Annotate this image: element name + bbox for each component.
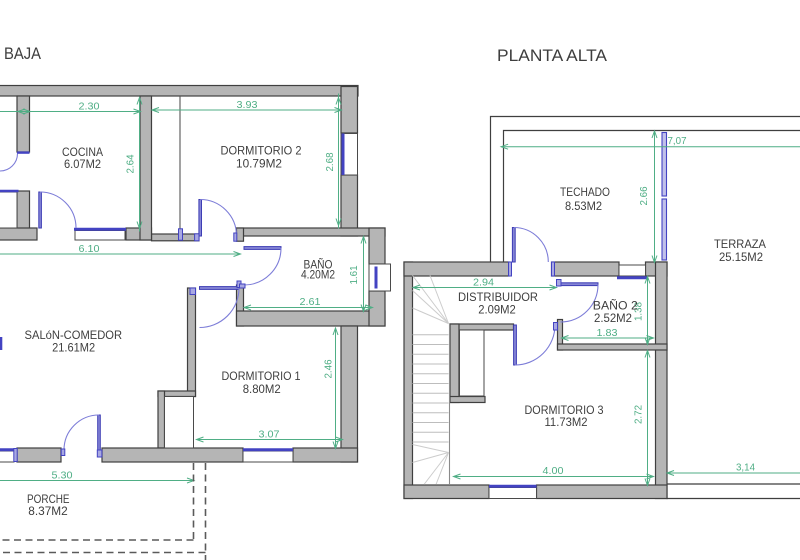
svg-text:25.15M2: 25.15M2 (719, 250, 763, 264)
svg-text:2.09M2: 2.09M2 (478, 303, 516, 317)
svg-text:6.07M2: 6.07M2 (64, 157, 101, 171)
svg-text:2.72: 2.72 (633, 405, 645, 424)
svg-text:1.61: 1.61 (348, 265, 360, 284)
svg-text:DORMITORIO 2: DORMITORIO 2 (221, 144, 302, 158)
svg-text:7,07: 7,07 (668, 135, 687, 147)
svg-text:1.83: 1.83 (597, 327, 618, 339)
svg-text:2.68: 2.68 (324, 152, 336, 171)
svg-text:TECHADO: TECHADO (560, 185, 610, 199)
svg-text:BAJA: BAJA (4, 45, 41, 63)
svg-text:3.93: 3.93 (237, 99, 258, 111)
svg-text:10.79M2: 10.79M2 (236, 157, 282, 171)
svg-text:3,14: 3,14 (736, 462, 755, 474)
svg-text:11.73M2: 11.73M2 (545, 415, 588, 429)
svg-text:4.20M2: 4.20M2 (301, 268, 335, 282)
svg-text:2.30: 2.30 (79, 100, 100, 112)
svg-text:TERRAZA: TERRAZA (714, 237, 766, 251)
svg-text:3.07: 3.07 (259, 429, 280, 441)
svg-text:DORMITORIO 1: DORMITORIO 1 (222, 369, 301, 383)
svg-text:2.64: 2.64 (125, 154, 137, 173)
svg-text:PLANTA ALTA: PLANTA ALTA (497, 47, 607, 65)
svg-text:2.46: 2.46 (323, 359, 335, 378)
svg-text:6.10: 6.10 (79, 243, 100, 255)
svg-text:2.94: 2.94 (473, 276, 494, 288)
svg-text:8.80M2: 8.80M2 (243, 382, 281, 396)
svg-text:4.00: 4.00 (543, 465, 564, 477)
svg-text:8.37M2: 8.37M2 (28, 504, 68, 518)
svg-text:2.61: 2.61 (300, 296, 321, 308)
svg-text:21.61M2: 21.61M2 (52, 341, 95, 355)
svg-text:8.53M2: 8.53M2 (565, 199, 602, 213)
svg-text:2.52M2: 2.52M2 (594, 311, 632, 325)
svg-text:5.30: 5.30 (52, 470, 73, 482)
svg-text:2.66: 2.66 (638, 186, 650, 205)
